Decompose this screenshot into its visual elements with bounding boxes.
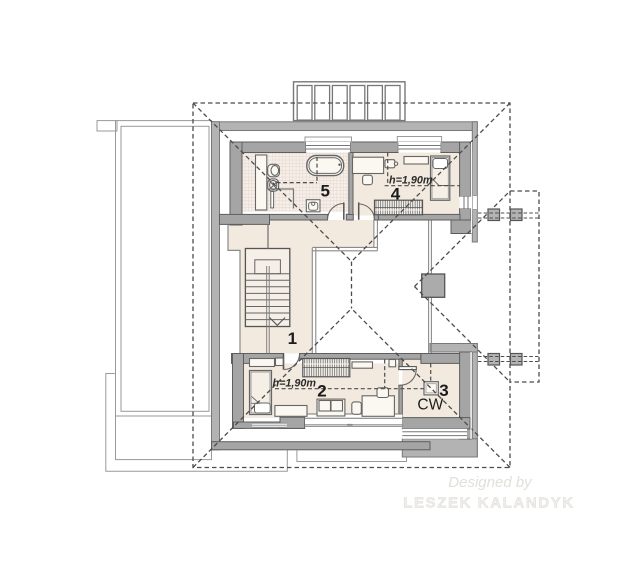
svg-text:1: 1 — [288, 329, 297, 348]
svg-text:h=1,90m: h=1,90m — [389, 175, 433, 187]
svg-text:Designed by: Designed by — [448, 474, 533, 491]
svg-text:4: 4 — [391, 185, 401, 204]
svg-text:CW: CW — [417, 397, 443, 414]
svg-text:LESZEK KALANDYK: LESZEK KALANDYK — [403, 495, 575, 512]
svg-text:2: 2 — [317, 382, 326, 401]
svg-text:h=1,90m: h=1,90m — [273, 378, 317, 390]
svg-text:5: 5 — [320, 182, 329, 201]
